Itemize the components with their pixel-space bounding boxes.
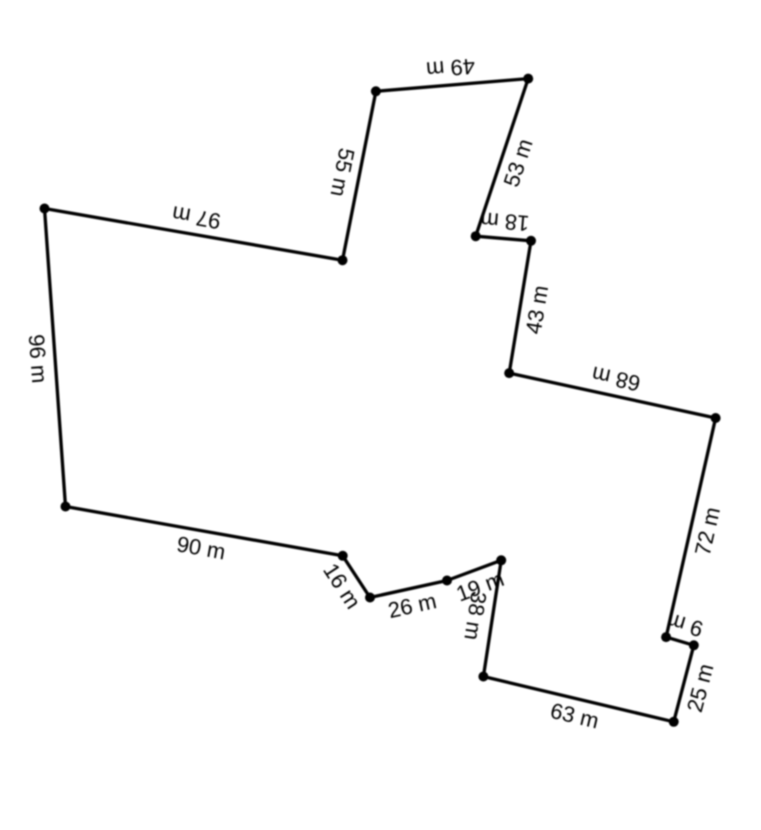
svg-text:16 m: 16 m [318, 559, 366, 614]
svg-text:53 m: 53 m [499, 136, 538, 190]
svg-text:97 m: 97 m [170, 201, 222, 234]
svg-text:43 m: 43 m [521, 284, 554, 336]
svg-text:96 m: 96 m [24, 333, 52, 384]
svg-text:90 m: 90 m [175, 531, 228, 564]
svg-text:18 m: 18 m [479, 207, 530, 236]
svg-text:49 m: 49 m [425, 54, 476, 83]
svg-text:55 m: 55 m [325, 146, 359, 199]
